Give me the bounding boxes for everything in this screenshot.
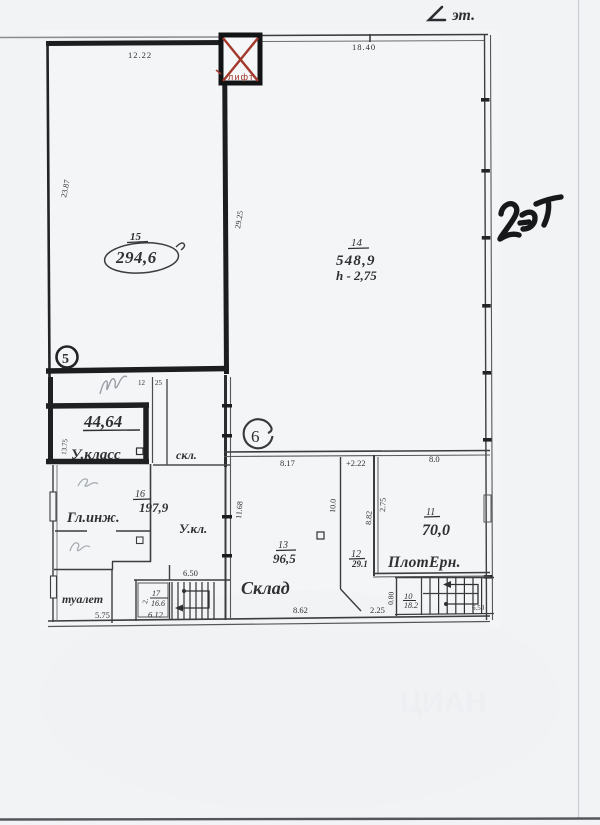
svg-text:70,0: 70,0	[422, 522, 450, 539]
svg-text:6.12: 6.12	[148, 610, 164, 620]
svg-text:8.0: 8.0	[429, 454, 440, 464]
svg-text:Склад: Склад	[241, 578, 290, 598]
svg-text:лифт: лифт	[228, 72, 254, 82]
svg-text:h - 2,75: h - 2,75	[336, 268, 377, 283]
svg-text:12: 12	[138, 379, 146, 387]
svg-text:5: 5	[62, 352, 69, 367]
svg-text:туалет: туалет	[62, 592, 103, 606]
svg-text:2.75: 2.75	[378, 498, 388, 512]
svg-text:8.82: 8.82	[364, 511, 374, 525]
svg-text:0.80: 0.80	[386, 591, 396, 605]
svg-text:10.0: 10.0	[328, 499, 338, 513]
svg-text:16.6: 16.6	[151, 599, 165, 608]
svg-text:10: 10	[404, 591, 413, 601]
svg-text:6.50: 6.50	[472, 604, 485, 612]
svg-text:29.1: 29.1	[351, 559, 368, 569]
svg-text:197,9: 197,9	[139, 500, 169, 515]
svg-text:11.68: 11.68	[234, 501, 245, 519]
svg-text:У.класс: У.класс	[71, 447, 121, 463]
svg-text:548,9: 548,9	[336, 253, 376, 269]
svg-text:Гл.инж.: Гл.инж.	[66, 510, 120, 526]
svg-text:18.40: 18.40	[352, 42, 376, 52]
svg-text:эт.: эт.	[451, 7, 475, 24]
svg-text:18.2: 18.2	[404, 601, 418, 610]
svg-text:У.кл.: У.кл.	[179, 521, 207, 536]
svg-text:6.50: 6.50	[183, 568, 198, 578]
svg-text:2.25: 2.25	[370, 605, 385, 615]
svg-text:15: 15	[130, 231, 142, 243]
svg-text:294,6: 294,6	[115, 248, 157, 267]
svg-text:8.17: 8.17	[280, 458, 295, 468]
svg-text:ПлотЕрн.: ПлотЕрн.	[387, 554, 461, 571]
svg-text:25: 25	[155, 379, 163, 387]
svg-text:17: 17	[152, 589, 161, 598]
svg-text:12.22: 12.22	[128, 50, 152, 60]
svg-text:44,64: 44,64	[83, 412, 122, 431]
svg-text:13.75: 13.75	[60, 438, 69, 455]
svg-text:+2.22: +2.22	[346, 458, 366, 468]
svg-text:13: 13	[278, 540, 288, 551]
svg-text:ЦИАН: ЦИАН	[400, 686, 487, 719]
svg-text:16: 16	[135, 489, 145, 500]
svg-text:скл.: скл.	[176, 448, 197, 462]
svg-text:8.62: 8.62	[293, 605, 308, 615]
svg-text:14: 14	[351, 237, 363, 249]
svg-text:5.75: 5.75	[95, 610, 110, 620]
svg-text:6: 6	[251, 427, 260, 446]
svg-text:96,5: 96,5	[273, 551, 296, 566]
